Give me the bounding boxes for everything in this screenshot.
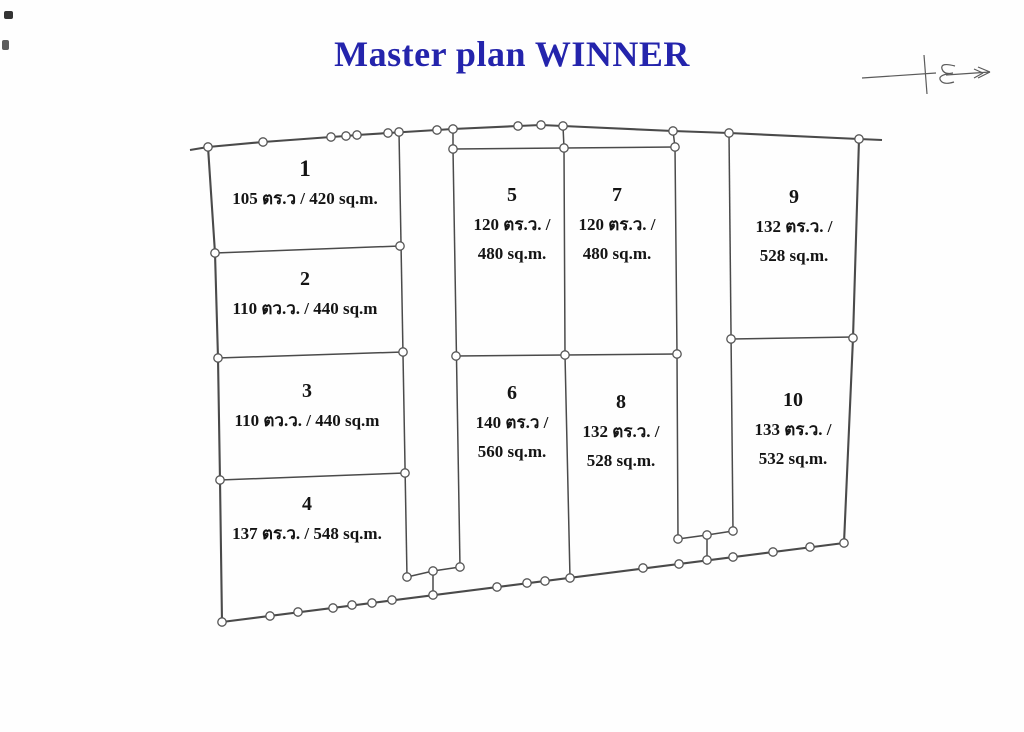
plot-label-1: 1 105 ตร.ว / 420 sq.m. [232,158,377,209]
plan-drawing [0,0,1024,732]
plot-area: 480 sq.m. [474,244,551,264]
plot-number: 2 [233,268,378,290]
plot-number: 5 [474,184,551,206]
plot-area: 110 ตว.ว. / 440 sq.m [233,299,378,319]
plot-area: 532 sq.m. [755,449,832,469]
plot-area: 133 ตร.ว. / [755,420,832,440]
plot-number: 6 [476,382,549,404]
plot-label-3: 3 110 ตว.ว. / 440 sq.m [235,380,380,431]
plot-area: 560 sq.m. [476,442,549,462]
plot-label-5: 5 120 ตร.ว. / 480 sq.m. [474,184,551,264]
plot-number: 10 [755,389,832,411]
plot-area: 480 sq.m. [579,244,656,264]
plot-label-8: 8 132 ตร.ว. / 528 sq.m. [583,391,660,471]
plot-number: 7 [579,184,656,206]
plot-area: 110 ตว.ว. / 440 sq.m [235,411,380,431]
plot-area: 140 ตร.ว / [476,413,549,433]
plot-label-10: 10 133 ตร.ว. / 532 sq.m. [755,389,832,469]
plot-area: 528 sq.m. [583,451,660,471]
plot-label-7: 7 120 ตร.ว. / 480 sq.m. [579,184,656,264]
master-plan-page: { "title": "Master plan WINNER", "colors… [0,0,1024,732]
plot-area: 528 sq.m. [756,246,833,266]
plot-area: 120 ตร.ว. / [474,215,551,235]
plot-area: 120 ตร.ว. / [579,215,656,235]
plot-label-2: 2 110 ตว.ว. / 440 sq.m [233,268,378,319]
plot-number: 9 [756,186,833,208]
plot-area: 137 ตร.ว. / 548 sq.m. [232,524,382,544]
plot-area: 132 ตร.ว. / [756,217,833,237]
plot-number: 4 [232,493,382,515]
plot-label-6: 6 140 ตร.ว / 560 sq.m. [476,382,549,462]
plot-number: 8 [583,391,660,413]
plot-number: 3 [235,380,380,402]
plot-area: 132 ตร.ว. / [583,422,660,442]
plot-area: 105 ตร.ว / 420 sq.m. [232,189,377,209]
plot-number: 1 [232,158,377,180]
plot-label-4: 4 137 ตร.ว. / 548 sq.m. [232,493,382,544]
plot-label-9: 9 132 ตร.ว. / 528 sq.m. [756,186,833,266]
